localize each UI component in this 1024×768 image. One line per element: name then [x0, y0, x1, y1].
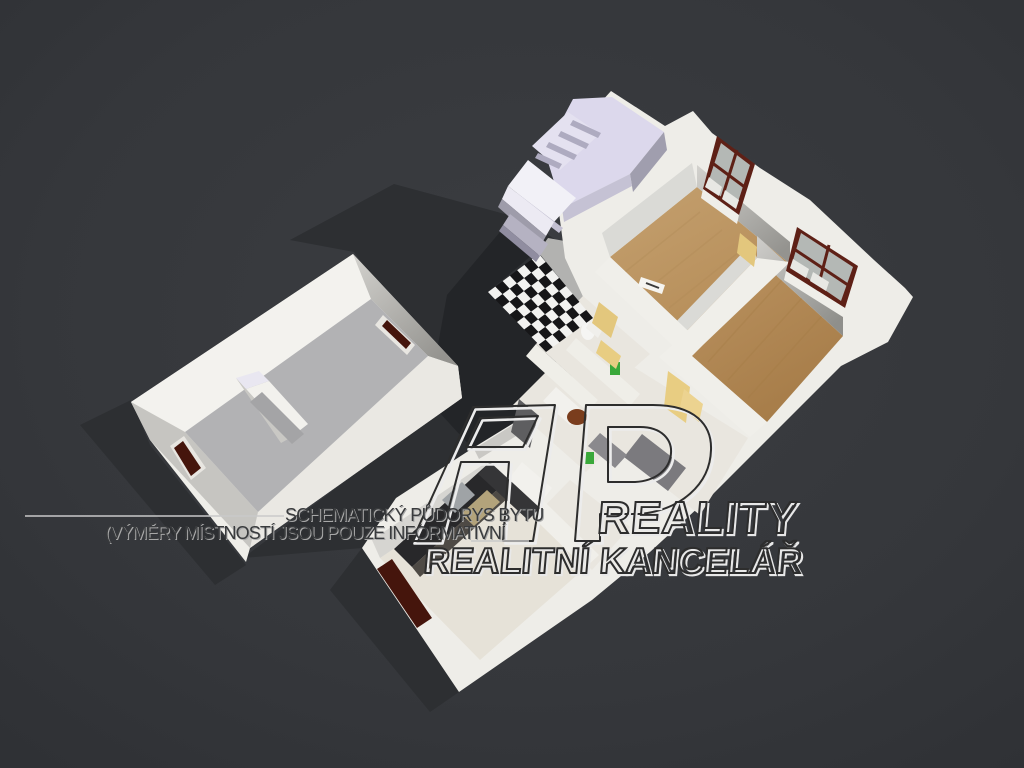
svg-text:SCHEMATICKÝ PŮDORYS BYTU: SCHEMATICKÝ PŮDORYS BYTU [285, 504, 544, 525]
svg-text:(VÝMĚRY MÍSTNOSTÍ JSOU POUZE I: (VÝMĚRY MÍSTNOSTÍ JSOU POUZE INFORMATIVN… [105, 523, 506, 543]
svg-text:REALITNÍ KANCELÁŘ: REALITNÍ KANCELÁŘ [422, 539, 803, 581]
svg-text:REALITY: REALITY [595, 492, 799, 543]
